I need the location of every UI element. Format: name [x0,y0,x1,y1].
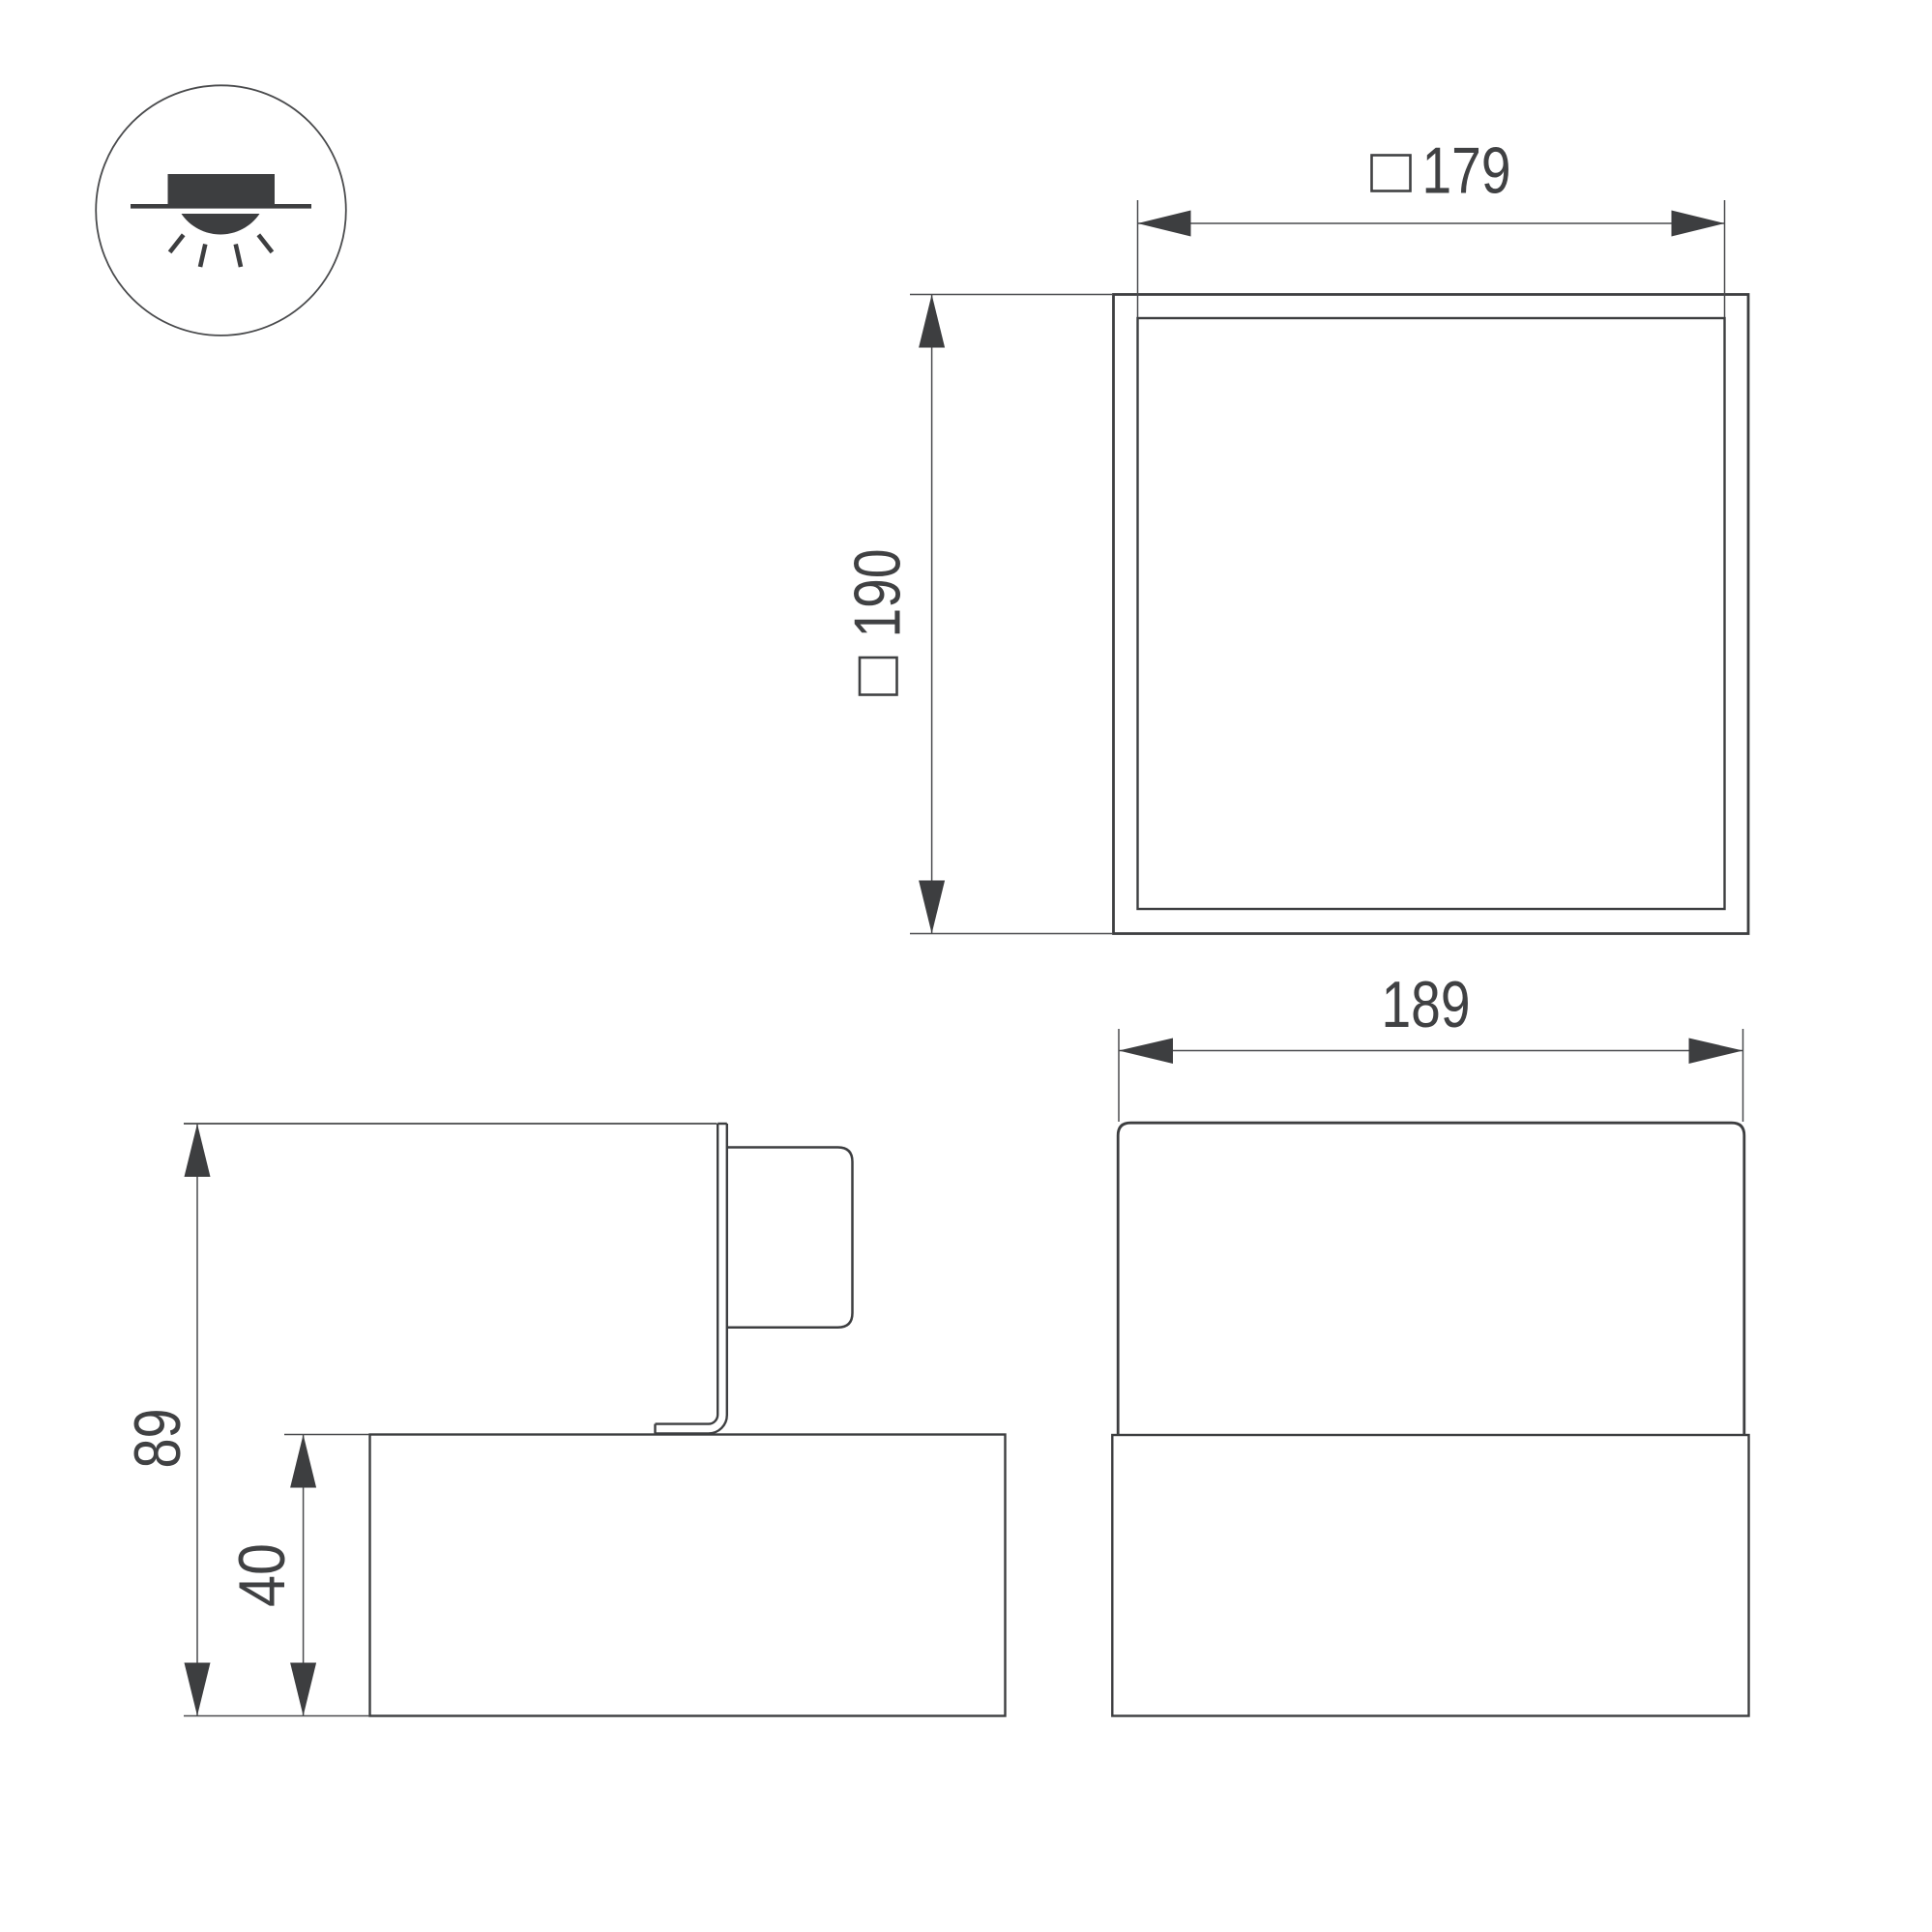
svg-text:190: 190 [842,549,915,638]
svg-text:179: 179 [1422,135,1511,208]
svg-text:189: 189 [1382,969,1471,1041]
svg-text:89: 89 [122,1409,194,1469]
svg-text:40: 40 [226,1543,299,1607]
